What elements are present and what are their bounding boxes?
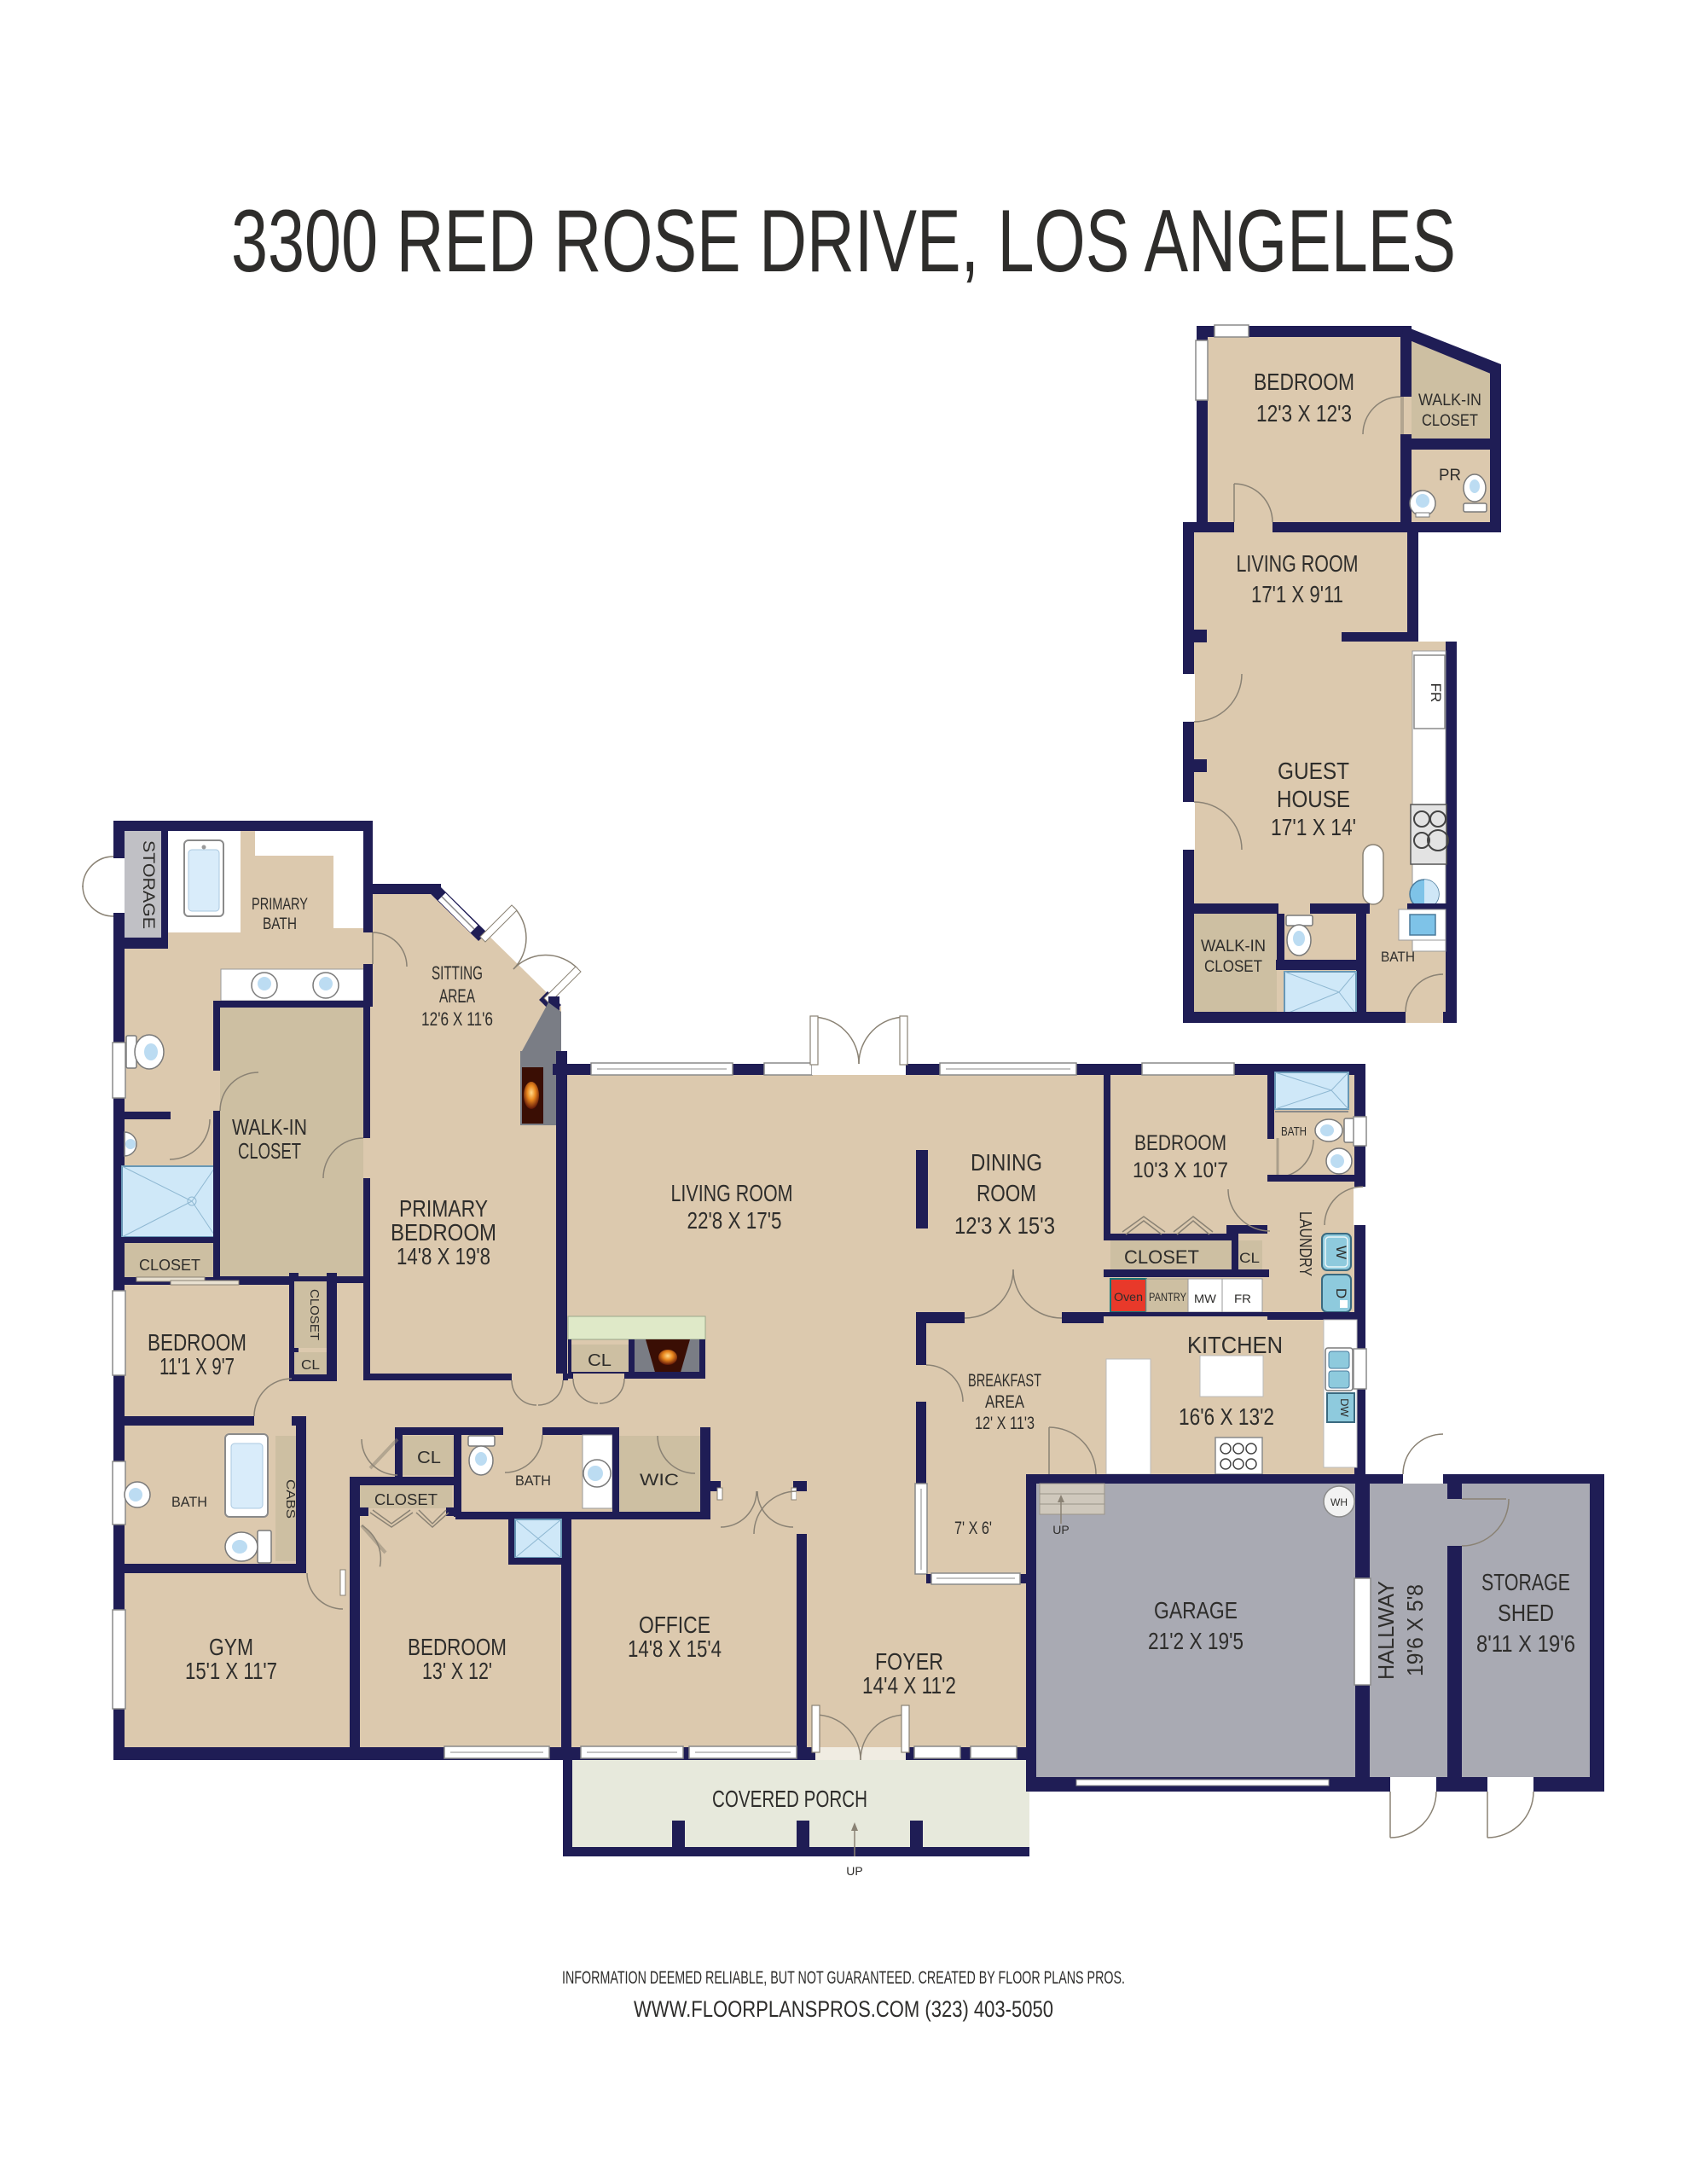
- svg-text:KITCHEN: KITCHEN: [1187, 1332, 1283, 1358]
- svg-text:CLOSET: CLOSET: [1422, 412, 1478, 430]
- svg-text:PRIMARY: PRIMARY: [399, 1195, 488, 1222]
- svg-text:17'1 X 14': 17'1 X 14': [1271, 814, 1356, 840]
- svg-text:WALK-IN: WALK-IN: [1418, 392, 1481, 409]
- svg-text:CABS: CABS: [283, 1479, 298, 1519]
- svg-text:DINING: DINING: [971, 1149, 1042, 1176]
- svg-text:14'8 X 19'8: 14'8 X 19'8: [397, 1243, 490, 1269]
- svg-text:CLOSET: CLOSET: [1124, 1246, 1199, 1268]
- svg-text:GUEST: GUEST: [1278, 758, 1349, 784]
- svg-text:OFFICE: OFFICE: [639, 1612, 710, 1638]
- svg-text:BATH: BATH: [1381, 949, 1415, 965]
- svg-text:UP: UP: [846, 1864, 862, 1878]
- svg-text:8'11 X 19'6: 8'11 X 19'6: [1476, 1630, 1575, 1657]
- svg-text:SHED: SHED: [1498, 1600, 1554, 1626]
- svg-text:PR: PR: [1439, 467, 1461, 485]
- svg-text:COVERED PORCH: COVERED PORCH: [712, 1786, 867, 1812]
- svg-text:CLOSET: CLOSET: [238, 1138, 301, 1164]
- svg-text:13' X 12': 13' X 12': [422, 1658, 492, 1684]
- svg-text:12'3 X 15'3: 12'3 X 15'3: [954, 1212, 1055, 1239]
- svg-text:D: D: [1333, 1288, 1349, 1298]
- svg-text:AREA: AREA: [439, 985, 475, 1007]
- svg-text:W: W: [1333, 1246, 1349, 1259]
- svg-text:HOUSE: HOUSE: [1277, 786, 1350, 812]
- svg-text:16'6 X 13'2: 16'6 X 13'2: [1179, 1403, 1274, 1430]
- svg-text:CL: CL: [301, 1358, 320, 1373]
- svg-text:12' X 11'3: 12' X 11'3: [975, 1414, 1035, 1433]
- svg-text:MW: MW: [1194, 1292, 1217, 1305]
- svg-text:BEDROOM: BEDROOM: [148, 1329, 246, 1356]
- svg-text:14'4 X 11'2: 14'4 X 11'2: [862, 1672, 956, 1699]
- svg-text:WALK-IN: WALK-IN: [1201, 938, 1266, 955]
- svg-text:FOYER: FOYER: [875, 1648, 943, 1675]
- svg-text:BATH: BATH: [263, 915, 297, 933]
- svg-text:19'6 X 5'8: 19'6 X 5'8: [1402, 1584, 1428, 1676]
- svg-text:7' X 6': 7' X 6': [954, 1519, 992, 1538]
- svg-text:SITTING: SITTING: [432, 962, 483, 984]
- svg-text:CL: CL: [588, 1351, 612, 1370]
- svg-text:HALLWAY: HALLWAY: [1373, 1581, 1399, 1680]
- svg-text:BATH: BATH: [1281, 1124, 1307, 1139]
- svg-text:WWW.FLOORPLANSPROS.COM (323): WWW.FLOORPLANSPROS.COM (323) 403-5050: [634, 1996, 1053, 2022]
- svg-text:FR: FR: [1428, 683, 1444, 703]
- svg-text:GARAGE: GARAGE: [1154, 1597, 1238, 1623]
- svg-text:PRIMARY: PRIMARY: [252, 896, 308, 914]
- svg-text:12'6 X 11'6: 12'6 X 11'6: [421, 1008, 493, 1030]
- svg-text:CL: CL: [417, 1449, 441, 1467]
- svg-text:15'1 X 11'7: 15'1 X 11'7: [185, 1658, 277, 1684]
- svg-text:STORAGE: STORAGE: [139, 840, 157, 929]
- svg-text:BATH: BATH: [171, 1494, 207, 1510]
- svg-text:ROOM: ROOM: [977, 1180, 1036, 1206]
- svg-text:WIC: WIC: [640, 1472, 679, 1490]
- svg-text:FR: FR: [1234, 1292, 1251, 1305]
- svg-text:STORAGE: STORAGE: [1481, 1569, 1570, 1595]
- svg-text:AREA: AREA: [985, 1392, 1024, 1412]
- svg-text:17'1 X 9'11: 17'1 X 9'11: [1251, 581, 1343, 607]
- svg-text:BEDROOM: BEDROOM: [1254, 369, 1354, 395]
- svg-text:BEDROOM: BEDROOM: [408, 1634, 507, 1660]
- svg-text:WALK-IN: WALK-IN: [232, 1114, 307, 1140]
- svg-text:CL: CL: [1239, 1250, 1260, 1266]
- svg-text:LAUNDRY: LAUNDRY: [1296, 1211, 1314, 1276]
- svg-text:LIVING ROOM: LIVING ROOM: [671, 1180, 793, 1206]
- svg-text:BREAKFAST: BREAKFAST: [968, 1371, 1041, 1391]
- svg-text:WH: WH: [1330, 1496, 1348, 1508]
- svg-text:21'2 X 19'5: 21'2 X 19'5: [1148, 1628, 1244, 1654]
- svg-text:CLOSET: CLOSET: [1204, 958, 1262, 976]
- svg-text:Oven: Oven: [1114, 1290, 1143, 1304]
- svg-text:11'1 X 9'7: 11'1 X 9'7: [159, 1353, 235, 1380]
- svg-text:22'8 X 17'5: 22'8 X 17'5: [687, 1207, 782, 1234]
- svg-text:GYM: GYM: [209, 1634, 253, 1660]
- svg-text:CLOSET: CLOSET: [139, 1257, 200, 1274]
- svg-text:LIVING ROOM: LIVING ROOM: [1237, 550, 1359, 577]
- svg-text:BEDROOM: BEDROOM: [1134, 1131, 1226, 1155]
- svg-text:14'8 X 15'4: 14'8 X 15'4: [628, 1635, 722, 1662]
- svg-text:INFORMATION DEEMED RELIABLE, B: INFORMATION DEEMED RELIABLE, BUT NOT GUA…: [562, 1968, 1125, 1988]
- svg-text:CLOSET: CLOSET: [374, 1491, 438, 1508]
- svg-text:CLOSET: CLOSET: [307, 1289, 322, 1340]
- svg-text:3300 RED ROSE DRIVE, LOS ANGEL: 3300 RED ROSE DRIVE, LOS ANGELES: [231, 192, 1456, 291]
- svg-text:12'3 X 12'3: 12'3 X 12'3: [1256, 400, 1352, 427]
- svg-text:BEDROOM: BEDROOM: [391, 1219, 496, 1246]
- svg-text:UP: UP: [1052, 1523, 1069, 1536]
- svg-text:DW: DW: [1338, 1398, 1351, 1417]
- svg-text:PANTRY: PANTRY: [1149, 1290, 1187, 1304]
- svg-text:10'3 X 10'7: 10'3 X 10'7: [1133, 1159, 1228, 1182]
- svg-text:BATH: BATH: [515, 1472, 551, 1489]
